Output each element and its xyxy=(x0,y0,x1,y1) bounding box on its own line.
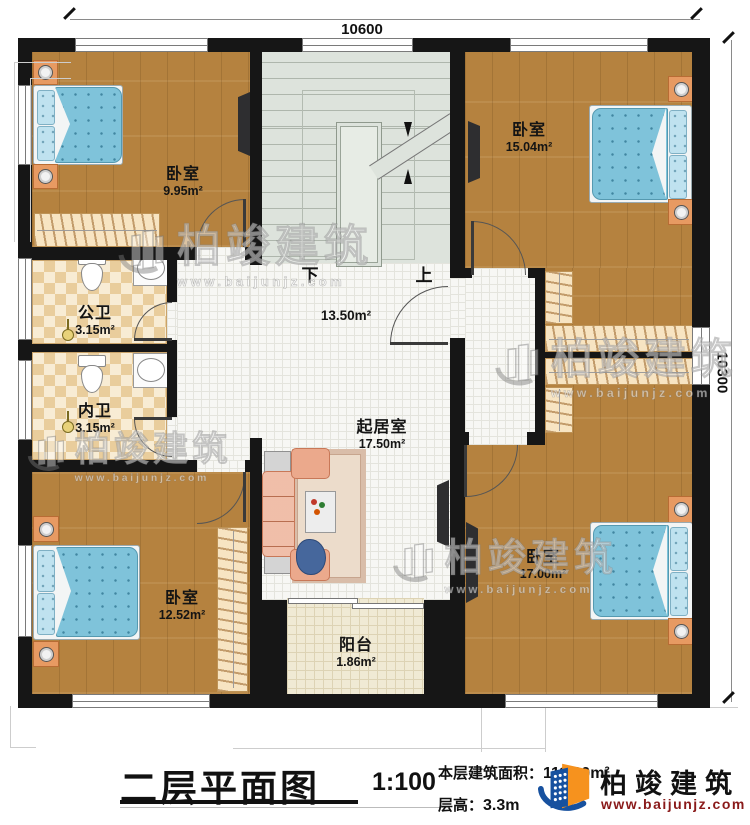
floor-corridor xyxy=(177,247,250,460)
pillow xyxy=(669,110,687,154)
table-flowers xyxy=(311,499,317,505)
armchair xyxy=(291,448,330,479)
lamp-icon xyxy=(674,502,689,517)
window-top-stair xyxy=(302,38,413,52)
label-hall-area: 13.50m² xyxy=(296,308,396,323)
room-name: 阳台 xyxy=(306,637,406,655)
title-underline-thin xyxy=(120,807,450,808)
extension-line xyxy=(30,78,31,242)
door-leaf xyxy=(243,472,246,522)
pillow xyxy=(37,126,55,161)
lamp-icon xyxy=(674,205,689,220)
lamp-icon xyxy=(39,647,54,662)
label-bedroom-tr: 卧室 15.04m² xyxy=(479,122,579,154)
dimension-tick xyxy=(722,691,735,704)
pillow xyxy=(669,155,687,199)
pillow xyxy=(37,550,55,592)
dimension-tick xyxy=(690,7,703,20)
nightstand xyxy=(33,516,59,542)
extension-line xyxy=(10,747,36,748)
room-area: 3.15m² xyxy=(45,421,145,435)
coffee-table xyxy=(305,491,336,533)
extension-line xyxy=(545,708,546,752)
label-bedroom-bl: 卧室 12.52m² xyxy=(132,590,232,622)
pillow xyxy=(37,90,55,125)
nightstand xyxy=(33,60,58,85)
room-area: 12.52m² xyxy=(132,608,232,622)
floor-height-value: 3.3m xyxy=(483,797,519,814)
stair-direction-arrow-up xyxy=(404,169,412,184)
nightstand xyxy=(668,199,694,225)
wall-bedroombr-entry xyxy=(527,432,545,445)
wardrobe-br-horizontal xyxy=(545,358,693,385)
brand-logo-icon xyxy=(537,758,595,816)
extension-line xyxy=(14,62,71,63)
wall-bedroombl-east xyxy=(250,438,262,695)
window-right-closet xyxy=(692,327,710,385)
wall-bedroomtl-bottom-stub xyxy=(245,247,262,260)
lamp-icon xyxy=(38,169,53,184)
balcony-sliding-door xyxy=(288,598,358,604)
stair-landing xyxy=(336,122,382,267)
tv-bedroom-br xyxy=(466,522,478,603)
floor-door-strip-hall xyxy=(450,278,465,338)
label-balcony: 阳台 1.86m² xyxy=(306,637,406,669)
room-area: 3.15m² xyxy=(45,323,145,337)
pillow xyxy=(670,572,688,616)
window-bottom-bedroombr xyxy=(505,694,658,708)
room-name: 起居室 xyxy=(332,419,432,437)
room-area: 17.00m² xyxy=(493,567,593,581)
room-name: 卧室 xyxy=(132,590,232,608)
pillow xyxy=(37,593,55,635)
window-left-bedroombl xyxy=(18,545,32,637)
dimension-line-top xyxy=(70,19,700,20)
window-left-bathpublic xyxy=(18,258,32,340)
wall-bath-east-lower xyxy=(167,340,177,417)
wall-hallway-east xyxy=(535,268,545,432)
room-name: 公卫 xyxy=(45,305,145,323)
dimension-tick xyxy=(722,31,735,44)
wardrobe-tr-horizontal xyxy=(545,325,693,352)
door-leaf xyxy=(243,199,246,247)
dimension-top-value: 10600 xyxy=(330,21,394,38)
window-top-bedroomtl xyxy=(75,38,208,52)
wall-between-baths xyxy=(30,344,167,352)
stair-up-label: 上 xyxy=(407,261,441,286)
room-name: 卧室 xyxy=(479,122,579,140)
dimension-right-value: 10300 xyxy=(714,343,731,403)
extension-line xyxy=(233,748,545,749)
extension-line xyxy=(481,708,482,752)
room-area: 9.95m² xyxy=(133,184,233,198)
label-living: 起居室 17.50m² xyxy=(332,419,432,451)
window-bottom-bedroombl xyxy=(72,694,210,708)
wall-bath-bottom xyxy=(18,460,197,472)
sofa-main xyxy=(262,471,295,557)
label-bedroom-br: 卧室 17.00m² xyxy=(493,549,593,581)
wall-bedroombr-entry-stub xyxy=(461,432,469,445)
wardrobe-br-vertical xyxy=(545,387,573,433)
door-leaf xyxy=(134,338,172,341)
room-area: 1.86m² xyxy=(306,655,406,669)
dimension-tick xyxy=(63,7,76,20)
tv-bedroom-tl xyxy=(238,92,250,156)
dimension-line-right xyxy=(731,40,732,702)
lamp-icon xyxy=(39,522,54,537)
sink-private xyxy=(137,358,165,382)
label-bath-public: 公卫 3.15m² xyxy=(45,305,145,337)
label-bedroom-tl: 卧室 9.95m² xyxy=(133,166,233,198)
extension-line xyxy=(14,62,15,242)
tv-living-room xyxy=(437,480,449,547)
room-area: 17.50m² xyxy=(332,437,432,451)
door-leaf xyxy=(464,445,467,497)
wall-stair-east xyxy=(450,52,465,278)
door-leaf xyxy=(390,342,448,345)
lamp-icon xyxy=(674,624,689,639)
window-top-bedroomtr xyxy=(510,38,648,52)
stair-down-label: 下 xyxy=(293,261,327,286)
room-name: 卧室 xyxy=(133,166,233,184)
nightstand xyxy=(33,164,58,189)
room-name: 内卫 xyxy=(45,403,145,421)
floor-height-label: 层高： xyxy=(438,797,483,814)
extension-line xyxy=(30,78,71,79)
brand-url: www.baijunjz.com xyxy=(601,796,746,812)
room-name: 卧室 xyxy=(493,549,593,567)
floor-door-strip-bl xyxy=(197,460,245,472)
window-left-bathprivate xyxy=(18,360,32,440)
door-leaf xyxy=(471,221,474,275)
nightstand xyxy=(668,618,694,645)
wall-living-bedroombr xyxy=(450,338,465,694)
extension-line xyxy=(710,707,738,708)
wall-bedroomtl-stair xyxy=(250,52,262,265)
wardrobe-bedroom-tl xyxy=(34,213,160,247)
balcony-sliding-door xyxy=(352,603,424,609)
wall-bath-east-upper xyxy=(167,247,177,302)
nightstand xyxy=(668,76,694,102)
title-underline xyxy=(120,800,358,804)
wardrobe-tr-vertical xyxy=(545,271,573,324)
floor-area-label: 本层建筑面积： xyxy=(438,765,543,782)
label-bath-private: 内卫 3.15m² xyxy=(45,403,145,435)
room-area: 15.04m² xyxy=(479,140,579,154)
nightstand xyxy=(33,641,59,667)
floor-height-info: 层高：3.3m xyxy=(438,794,519,815)
floor-plan-canvas: 10600 10300 卧室 9.95m² 卧室 15.04m² 公卫 3.15… xyxy=(0,0,750,825)
pillow xyxy=(670,527,688,571)
floor-plant xyxy=(296,539,326,575)
extension-line xyxy=(10,706,11,748)
wall-between-closets xyxy=(545,352,693,358)
lamp-icon xyxy=(674,82,689,97)
plan-scale: 1:100 xyxy=(372,768,436,797)
nightstand xyxy=(668,496,694,523)
room-area: 13.50m² xyxy=(296,308,396,323)
stair-direction-arrow-down xyxy=(404,122,412,137)
floor-hallway-east xyxy=(465,268,535,445)
